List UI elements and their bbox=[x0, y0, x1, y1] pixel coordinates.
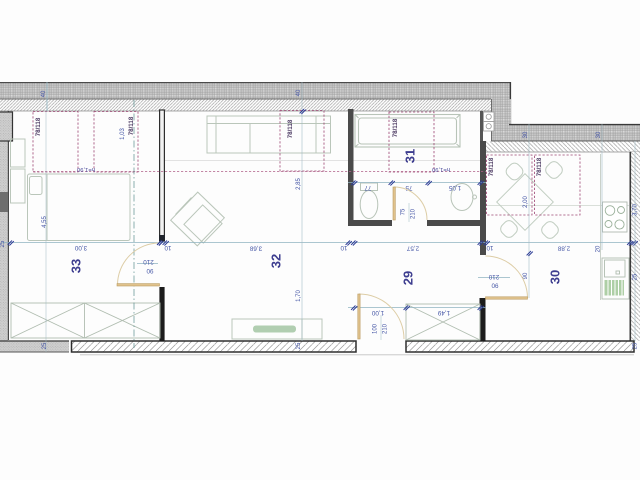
svg-text:90: 90 bbox=[523, 272, 529, 279]
svg-text:31: 31 bbox=[402, 149, 417, 163]
svg-text:78/118: 78/118 bbox=[488, 157, 495, 176]
svg-text:25: 25 bbox=[0, 240, 6, 247]
svg-text:40: 40 bbox=[41, 90, 47, 97]
svg-text:210: 210 bbox=[488, 273, 499, 280]
svg-text:210: 210 bbox=[143, 258, 154, 265]
svg-text:30: 30 bbox=[523, 131, 529, 138]
svg-text:2,85: 2,85 bbox=[296, 178, 302, 190]
svg-text:25: 25 bbox=[42, 342, 48, 349]
svg-text:2,57: 2,57 bbox=[406, 245, 419, 252]
svg-text:10: 10 bbox=[486, 244, 494, 251]
svg-text:h=1,90: h=1,90 bbox=[432, 166, 450, 172]
svg-text:2,88: 2,88 bbox=[557, 245, 570, 252]
svg-text:2,00: 2,00 bbox=[523, 196, 529, 208]
svg-text:1,49: 1,49 bbox=[437, 309, 450, 316]
svg-text:78/118: 78/118 bbox=[536, 157, 543, 176]
svg-text:20: 20 bbox=[596, 245, 602, 252]
svg-text:h=1,90: h=1,90 bbox=[77, 166, 95, 172]
svg-text:1,70: 1,70 bbox=[296, 290, 302, 302]
svg-text:77: 77 bbox=[364, 184, 372, 191]
svg-text:75: 75 bbox=[401, 208, 407, 215]
svg-text:210: 210 bbox=[411, 208, 417, 219]
svg-text:29: 29 bbox=[400, 271, 415, 285]
svg-text:1,03: 1,03 bbox=[120, 128, 126, 140]
svg-text:10: 10 bbox=[340, 244, 348, 251]
svg-text:90: 90 bbox=[146, 267, 154, 274]
svg-text:25: 25 bbox=[633, 273, 639, 280]
svg-text:78/118: 78/118 bbox=[35, 117, 42, 136]
svg-text:40: 40 bbox=[296, 89, 302, 96]
svg-text:32: 32 bbox=[268, 254, 283, 268]
svg-text:4,55: 4,55 bbox=[42, 216, 48, 228]
svg-text:10: 10 bbox=[164, 244, 172, 251]
svg-text:30: 30 bbox=[596, 131, 602, 138]
svg-text:1,05: 1,05 bbox=[448, 184, 461, 191]
svg-text:30: 30 bbox=[547, 270, 562, 284]
svg-text:3,00: 3,00 bbox=[74, 244, 87, 251]
svg-text:3,68: 3,68 bbox=[249, 245, 262, 252]
svg-text:90: 90 bbox=[491, 282, 499, 289]
svg-text:78/118: 78/118 bbox=[392, 118, 399, 137]
svg-text:33: 33 bbox=[68, 259, 83, 273]
svg-text:100: 100 bbox=[373, 323, 379, 334]
svg-text:1,00: 1,00 bbox=[371, 309, 384, 316]
svg-text:210: 210 bbox=[383, 323, 389, 334]
svg-text:25: 25 bbox=[296, 342, 302, 349]
svg-text:25: 25 bbox=[633, 342, 639, 349]
svg-text:3,70: 3,70 bbox=[633, 204, 639, 216]
svg-text:78/118: 78/118 bbox=[287, 119, 294, 138]
